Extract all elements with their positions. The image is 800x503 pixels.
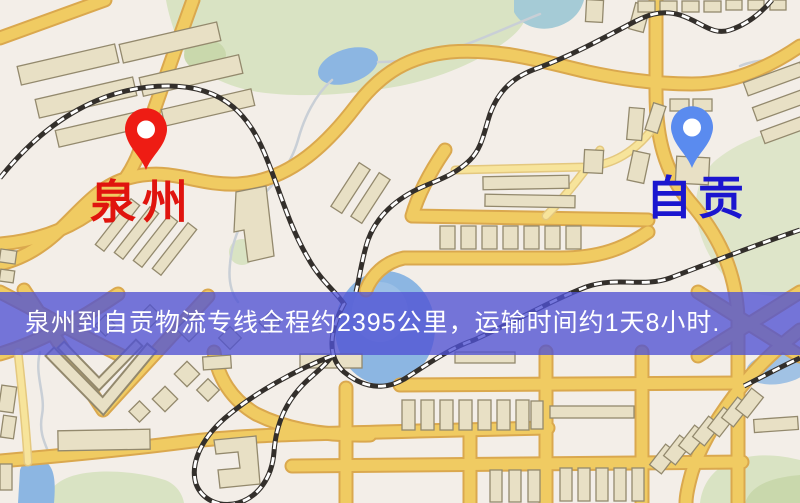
origin-location-pin-icon[interactable] <box>122 106 170 172</box>
destination-location-pin-icon[interactable] <box>668 104 716 170</box>
pin-icon <box>668 104 716 170</box>
destination-city-label: 自贡 <box>646 175 750 221</box>
pin-icon <box>122 106 170 172</box>
origin-city-label: 泉州 <box>90 179 194 225</box>
route-info-text: 泉州到自贡物流专线全程约2395公里，运输时间约1天8小时. <box>0 311 720 336</box>
map-view[interactable]: 泉州到自贡物流专线全程约2395公里，运输时间约1天8小时. 泉州 自贡 <box>0 0 800 503</box>
map-canvas <box>0 0 800 503</box>
route-info-banner: 泉州到自贡物流专线全程约2395公里，运输时间约1天8小时. <box>0 292 800 355</box>
